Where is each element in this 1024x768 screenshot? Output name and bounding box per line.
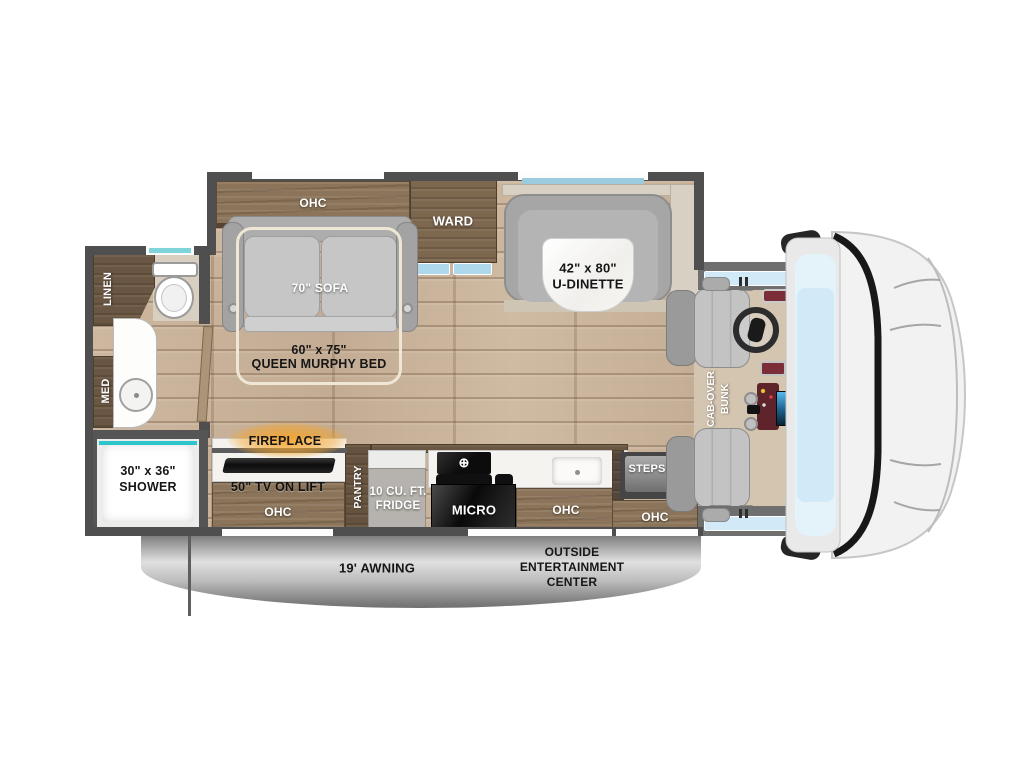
- compartment-strip-left: [222, 529, 333, 536]
- fridge-label-line2: FRIDGE: [376, 500, 421, 512]
- cab-front: [778, 226, 970, 564]
- dinette-label-line1: 42" x 80": [559, 261, 617, 276]
- rv-floorplan: 19' AWNING OUTSIDE ENTERTAINMENT CENTER …: [0, 0, 1024, 768]
- fireplace-label: FIREPLACE: [249, 434, 322, 448]
- murphy-label-line1: 60" x 75": [291, 343, 346, 357]
- cab-doorlatch-top: [739, 277, 742, 286]
- cupholder-rear: [744, 417, 758, 431]
- dinette-label-line2: U-DINETTE: [552, 277, 623, 292]
- toilet-tank: [152, 262, 198, 277]
- burner-icon: ⊕: [458, 455, 469, 471]
- tv-screen: [222, 458, 336, 473]
- cabover-line1: CAB-OVER: [704, 369, 718, 429]
- windshield-glass: [797, 288, 834, 502]
- steps-label: STEPS: [628, 463, 665, 475]
- fridge-label-line1: 10 CU. FT.: [370, 486, 427, 498]
- awning-arm: [188, 536, 191, 616]
- toilet-seat: [161, 284, 187, 312]
- linen-label: LINEN: [102, 272, 114, 306]
- hood: [832, 232, 965, 558]
- sofa-label: 70" SOFA: [292, 281, 349, 295]
- entertainment-label-line1: OUTSIDE: [545, 545, 600, 559]
- compartment-strip-entry: [616, 529, 698, 536]
- entertainment-label-line2: ENTERTAINMENT: [520, 560, 624, 574]
- ohc-bedroom-label: OHC: [299, 196, 326, 210]
- shower-label-line1: 30" x 36": [120, 464, 175, 478]
- med-label: MED: [100, 378, 112, 403]
- toilet-window-glass: [149, 248, 191, 253]
- slideout-wall-left: [207, 172, 216, 255]
- cab-doorarm-top: [702, 277, 730, 291]
- cupholder-front: [744, 392, 758, 406]
- kitchen-sink-drain: [575, 470, 580, 475]
- tv-label: 50" TV ON LIFT: [231, 480, 325, 494]
- cab-doorarm-bottom: [702, 508, 730, 522]
- passenger-seat-cushion: [694, 428, 750, 508]
- ward-window-right: [453, 263, 492, 275]
- usb-slot: [747, 405, 760, 414]
- vanity-sink-drain: [134, 393, 139, 398]
- ohc-entry-label: OHC: [641, 510, 668, 524]
- cabover-bunk-label: CAB-OVER BUNK: [704, 369, 734, 429]
- ward-label: WARD: [433, 214, 474, 229]
- entertainment-label-line3: CENTER: [547, 575, 598, 589]
- fridge: [368, 468, 426, 530]
- dinette-wall-right: [694, 172, 704, 270]
- bedroom-window: [252, 172, 384, 179]
- bathroom-wall-upper: [199, 254, 210, 324]
- fridge-counter-cap: [368, 450, 426, 470]
- cab-doorlatch-bottom: [739, 509, 742, 518]
- cabover-line2: BUNK: [718, 369, 732, 429]
- awning-label: 19' AWNING: [339, 561, 415, 576]
- sofa-cupholder-right: [402, 303, 413, 314]
- ohc-kitchen-label: OHC: [552, 503, 579, 517]
- compartment-strip-mid: [468, 529, 612, 536]
- murphy-label-line2: QUEEN MURPHY BED: [252, 357, 387, 371]
- dinette-window-glass: [522, 178, 644, 184]
- wall-left: [85, 246, 93, 536]
- pantry-label: PANTRY: [352, 465, 364, 508]
- shower-label-line2: SHOWER: [119, 480, 176, 494]
- ohc-tv-label: OHC: [264, 505, 291, 519]
- shower-door-track: [99, 441, 197, 445]
- micro-label: MICRO: [452, 503, 496, 518]
